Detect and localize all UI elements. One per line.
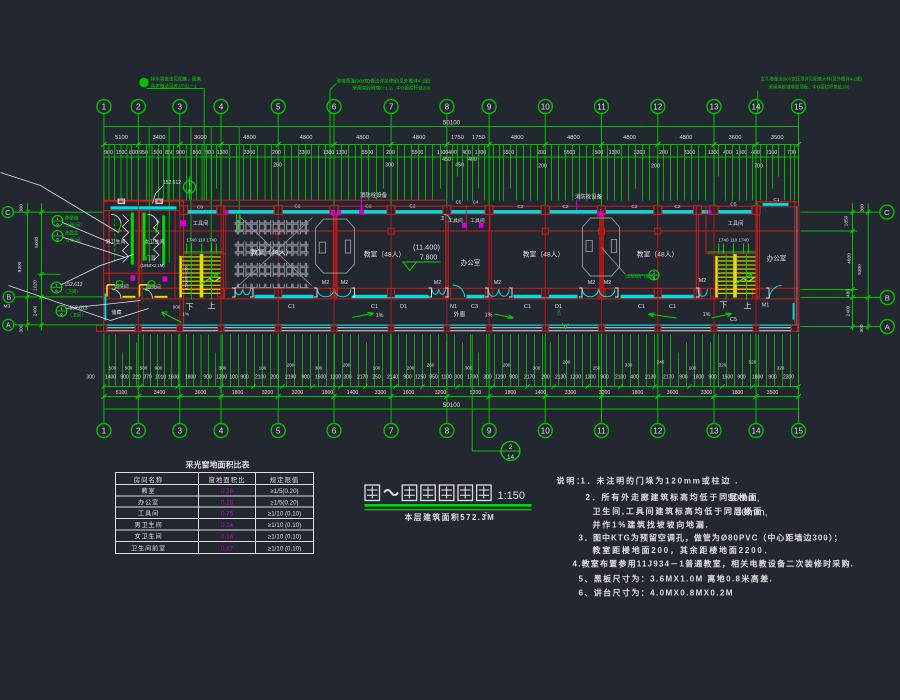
svg-text:1500: 1500 [116, 150, 128, 156]
svg-text:采用夹胶玻璃6+1.2，中O距栏杆处200: 采用夹胶玻璃6+1.2，中O距栏杆处200 [353, 85, 431, 92]
svg-text:260: 260 [273, 163, 282, 169]
svg-text:3: 3 [178, 103, 183, 112]
svg-text:5200: 5200 [470, 390, 482, 396]
svg-text:1300: 1300 [708, 150, 720, 156]
svg-text:240: 240 [657, 360, 665, 365]
svg-text:12: 12 [653, 103, 663, 112]
svg-text:1250: 1250 [415, 375, 426, 381]
svg-text:15: 15 [794, 427, 804, 436]
svg-text:900: 900 [173, 305, 181, 310]
svg-text:3400: 3400 [153, 135, 166, 141]
svg-text:0.26: 0.26 [221, 488, 234, 495]
svg-text:1200: 1200 [495, 375, 506, 381]
svg-text:9300: 9300 [17, 261, 23, 272]
svg-text:300: 300 [86, 375, 95, 381]
svg-text:C: C [5, 210, 10, 217]
svg-text:0.75: 0.75 [221, 511, 234, 518]
svg-text:男卫生间: 男卫生间 [135, 521, 163, 529]
svg-text:152.612: 152.612 [65, 282, 83, 288]
svg-text:≥1/5(0.20): ≥1/5(0.20) [270, 488, 298, 495]
svg-text:3600: 3600 [195, 390, 207, 396]
svg-text:卫生间前室: 卫生间前室 [131, 545, 166, 553]
svg-text:14: 14 [751, 427, 761, 436]
svg-text:3600: 3600 [729, 135, 742, 141]
svg-text:1500: 1500 [437, 150, 449, 156]
svg-text:1600: 1600 [403, 390, 415, 396]
svg-text:1010: 1010 [155, 375, 166, 381]
svg-text:3: 3 [178, 427, 183, 436]
svg-text:7: 7 [389, 103, 394, 112]
svg-text:300: 300 [343, 375, 352, 381]
svg-text:4900: 4900 [847, 253, 853, 264]
svg-text:800: 800 [129, 150, 138, 156]
svg-text:0.16: 0.16 [221, 534, 234, 541]
svg-text:2130: 2130 [645, 375, 656, 381]
svg-text:3300: 3300 [375, 390, 387, 396]
svg-text:卫: 卫 [440, 216, 445, 221]
svg-text:400: 400 [630, 375, 639, 381]
svg-text:消防栓设备: 消防栓设备 [360, 191, 388, 199]
svg-text:C1: C1 [524, 304, 531, 310]
svg-text:2400: 2400 [32, 305, 38, 316]
svg-text:B: B [6, 295, 11, 302]
svg-text:(1850X2.1M): (1850X2.1M) [140, 263, 165, 268]
svg-text:3300: 3300 [684, 150, 696, 156]
svg-text:C: C [884, 208, 890, 217]
svg-text:10: 10 [541, 427, 551, 436]
svg-text:100: 100 [229, 375, 238, 381]
svg-text:4800: 4800 [567, 135, 580, 141]
svg-text:1200: 1200 [330, 375, 341, 381]
svg-text:3．图中KTG为预留空调孔，做管为Ø80PVC（中心距墙边3: 3．图中KTG为预留空调孔，做管为Ø80PVC（中心距墙边300）； [579, 533, 843, 544]
svg-text:14: 14 [507, 454, 515, 461]
svg-text:5500: 5500 [412, 150, 424, 156]
svg-text:采光窗地面积比表: 采光窗地面积比表 [185, 460, 251, 470]
svg-text:5: 5 [276, 103, 281, 112]
svg-text:900: 900 [120, 375, 129, 381]
svg-text:4: 4 [219, 427, 224, 436]
svg-text:3300: 3300 [244, 150, 256, 156]
svg-text:教室（48人）: 教室（48人） [364, 250, 406, 259]
svg-text:4.教室布置参用11J934－1普通教室，相关电教设备二次装: 4.教室布置参用11J934－1普通教室，相关电教设备二次装修时采购. [573, 559, 855, 569]
svg-text:0.87: 0.87 [221, 546, 234, 553]
svg-text:C2: C2 [294, 204, 300, 210]
svg-text:1800: 1800 [732, 390, 744, 396]
svg-text:850: 850 [429, 375, 438, 381]
svg-text:50100: 50100 [443, 402, 461, 409]
svg-text:下: 下 [720, 301, 728, 310]
svg-text:1800: 1800 [322, 390, 334, 396]
svg-text:480: 480 [845, 289, 851, 297]
svg-text:300: 300 [385, 163, 394, 169]
svg-text:1200: 1200 [216, 375, 227, 381]
svg-text:200: 200 [343, 363, 351, 368]
svg-text:900: 900 [600, 375, 609, 381]
svg-text:1400: 1400 [347, 390, 359, 396]
svg-text:(11.400): (11.400) [413, 243, 440, 252]
svg-text:C1: C1 [288, 304, 295, 310]
svg-text:C4: C4 [473, 200, 479, 205]
svg-text:1500: 1500 [736, 150, 748, 156]
svg-text:C3: C3 [471, 304, 478, 310]
svg-text:2140: 2140 [387, 375, 398, 381]
svg-text:1800: 1800 [232, 390, 244, 396]
svg-text:300: 300 [315, 366, 323, 371]
svg-text:1: 1 [102, 103, 107, 112]
svg-text:（2张/间）: （2张/间） [63, 237, 85, 244]
svg-text:9: 9 [487, 427, 492, 436]
svg-text:15: 15 [794, 103, 804, 112]
svg-text:50100: 50100 [443, 120, 461, 127]
svg-text:工具间: 工具间 [138, 510, 159, 518]
svg-text:1600: 1600 [168, 375, 179, 381]
svg-text:3600: 3600 [194, 135, 207, 141]
svg-text:5: 5 [276, 427, 281, 436]
svg-text:M1: M1 [762, 303, 770, 309]
svg-text:教室: 教室 [142, 487, 156, 495]
svg-text:办公室: 办公室 [138, 499, 159, 507]
svg-text:7.800: 7.800 [420, 255, 438, 262]
svg-text:洗面盆: 洗面盆 [65, 230, 79, 237]
svg-text:门洞: 门洞 [145, 255, 155, 262]
svg-text:1300: 1300 [323, 150, 335, 156]
svg-text:1%: 1% [485, 313, 493, 319]
svg-text:700: 700 [754, 164, 763, 170]
svg-text:排水管做法见图集，图集: 排水管做法见图集，图集 [151, 76, 202, 83]
svg-text:100: 100 [373, 366, 381, 371]
svg-text:C1: C1 [371, 304, 378, 310]
svg-text:1300: 1300 [217, 150, 229, 156]
svg-text:6: 6 [332, 427, 337, 436]
svg-text:500: 500 [140, 366, 148, 371]
svg-text:2400: 2400 [845, 305, 851, 316]
svg-text:100: 100 [259, 366, 267, 371]
svg-text:上: 上 [744, 302, 752, 311]
svg-text:上: 上 [208, 302, 216, 311]
svg-text:C5: C5 [118, 199, 124, 205]
svg-text:1400: 1400 [105, 375, 116, 381]
svg-text:900: 900 [708, 375, 717, 381]
svg-text:1740 110 1740: 1740 110 1740 [186, 238, 217, 243]
svg-text:5500: 5500 [503, 150, 515, 156]
svg-text:2100: 2100 [766, 150, 778, 156]
svg-text:消防栓设备: 消防栓设备 [575, 193, 603, 201]
svg-text:M2: M2 [434, 280, 442, 286]
svg-text:1．未注明的门垛为120mm或柱边 .: 1．未注明的门垛为120mm或柱边 . [581, 476, 740, 486]
svg-text:200: 200 [503, 363, 511, 368]
svg-text:1800: 1800 [752, 375, 763, 381]
svg-text:外廊: 外廊 [453, 311, 465, 319]
svg-text:400: 400 [462, 150, 471, 156]
svg-text:C2: C2 [517, 204, 523, 210]
svg-text:3200: 3200 [292, 390, 304, 396]
svg-text:A: A [6, 323, 11, 330]
svg-text:下: 下 [186, 303, 194, 312]
svg-text:300: 300 [219, 366, 227, 371]
svg-text:N1: N1 [450, 304, 457, 310]
svg-text:女卫生间: 女卫生间 [144, 239, 164, 246]
svg-text:2: 2 [485, 512, 488, 518]
svg-text:4800: 4800 [300, 135, 313, 141]
svg-text:B: B [885, 294, 890, 303]
svg-text:女卫生间: 女卫生间 [135, 533, 163, 541]
svg-text:900: 900 [240, 375, 249, 381]
svg-text:2170: 2170 [357, 375, 368, 381]
svg-text:≥1/10 (0.10): ≥1/10 (0.10) [268, 511, 301, 518]
svg-text:M2: M2 [604, 280, 612, 286]
svg-text:C2: C2 [365, 204, 371, 210]
svg-text:1%: 1% [182, 312, 190, 318]
svg-text:4800: 4800 [243, 135, 256, 141]
svg-text:3300: 3300 [299, 150, 311, 156]
svg-text:C1: C1 [669, 304, 676, 310]
svg-text:8: 8 [445, 103, 450, 112]
svg-text:1850: 1850 [843, 215, 849, 226]
svg-text:1740 110 1740: 1740 110 1740 [718, 238, 749, 243]
svg-text:300: 300 [19, 324, 25, 332]
svg-text:≥1/10 (0.10): ≥1/10 (0.10) [268, 546, 301, 553]
svg-text:370: 370 [143, 375, 152, 381]
svg-text:≥1/5(0.20): ≥1/5(0.20) [270, 500, 298, 507]
svg-text:M3: M3 [4, 304, 11, 310]
svg-text:200: 200 [386, 150, 395, 156]
svg-text:教室距楼地面200，其余距楼地面2200．: 教室距楼地面200，其余距楼地面2200． [592, 545, 774, 555]
svg-text:1200: 1200 [570, 375, 581, 381]
svg-text:5000: 5000 [34, 237, 40, 248]
svg-text:14: 14 [751, 103, 761, 112]
svg-text:储藏: 储藏 [111, 309, 121, 316]
svg-text:1750: 1750 [472, 135, 485, 141]
svg-text:1800: 1800 [505, 390, 517, 396]
svg-text:3300: 3300 [701, 390, 713, 396]
svg-text:规定限值: 规定限值 [270, 475, 300, 484]
svg-text:≥1/10 (0.10): ≥1/10 (0.10) [268, 534, 301, 541]
svg-text:30mm,: 30mm, [736, 507, 768, 519]
svg-text:6: 6 [332, 103, 337, 112]
svg-text:450: 450 [442, 157, 451, 163]
svg-text:1:150: 1:150 [498, 490, 526, 502]
svg-text:C5: C5 [730, 202, 736, 208]
svg-text:C5: C5 [156, 199, 162, 205]
svg-text:4800: 4800 [413, 135, 426, 141]
svg-text:2: 2 [509, 444, 513, 451]
svg-text:12: 12 [653, 427, 663, 436]
svg-text:1750: 1750 [451, 135, 464, 141]
svg-text:1500: 1500 [151, 150, 163, 156]
svg-text:C2: C2 [409, 204, 415, 210]
svg-text:250: 250 [593, 366, 601, 371]
svg-text:250: 250 [372, 375, 381, 381]
svg-text:工具间: 工具间 [193, 219, 209, 227]
svg-text:M2: M2 [588, 280, 596, 286]
svg-text:D1: D1 [555, 304, 562, 310]
svg-text:320: 320 [777, 366, 785, 371]
svg-text:6、讲台尺寸为：4.0MX0.8MX0.2M: 6、讲台尺寸为：4.0MX0.8MX0.2M [579, 588, 734, 598]
svg-text:3500: 3500 [767, 390, 779, 396]
svg-text:2300: 2300 [783, 375, 794, 381]
svg-text:2100: 2100 [255, 375, 266, 381]
svg-text:11: 11 [597, 427, 606, 436]
svg-text:4800: 4800 [623, 135, 636, 141]
svg-text:R: R [188, 188, 191, 193]
svg-text:C1: C1 [638, 304, 645, 310]
svg-text:300: 300 [859, 324, 865, 332]
svg-text:900: 900 [509, 375, 518, 381]
svg-text:200: 200 [270, 375, 279, 381]
svg-text:办公室: 办公室 [461, 258, 481, 267]
svg-text:教室（48人）: 教室（48人） [523, 250, 565, 259]
svg-text:11: 11 [597, 103, 606, 112]
svg-text:900: 900 [176, 150, 185, 156]
svg-text:3200: 3200 [262, 390, 274, 396]
svg-text:1600: 1600 [315, 375, 326, 381]
svg-text:4800: 4800 [511, 135, 524, 141]
svg-text:2%: 2% [557, 309, 562, 315]
svg-text:900: 900 [679, 375, 688, 381]
svg-text:300: 300 [19, 204, 25, 212]
svg-text:7: 7 [389, 427, 394, 436]
svg-text:C2: C2 [631, 204, 637, 210]
svg-text:1020: 1020 [32, 280, 38, 291]
svg-text:1400: 1400 [535, 390, 547, 396]
svg-text:C1: C1 [773, 197, 779, 203]
svg-text:100: 100 [689, 366, 697, 371]
svg-text:M2: M2 [699, 278, 707, 284]
svg-text:1: 1 [102, 427, 107, 436]
svg-text:4800: 4800 [356, 135, 369, 141]
svg-text:220: 220 [132, 375, 141, 381]
svg-text:（卫间）: （卫间） [68, 312, 86, 319]
svg-text:2130: 2130 [555, 375, 566, 381]
svg-text:900: 900 [737, 375, 746, 381]
svg-text:办公室: 办公室 [767, 254, 787, 263]
svg-text:教室（48人）: 教室（48人） [637, 250, 679, 259]
svg-text:200: 200 [563, 360, 571, 365]
svg-text:200: 200 [407, 366, 415, 371]
svg-text:C6: C6 [197, 205, 203, 211]
svg-text:0.28: 0.28 [221, 500, 234, 507]
svg-text:8: 8 [445, 427, 450, 436]
svg-text:500: 500 [109, 366, 117, 371]
svg-text:（卫间）: （卫间） [63, 288, 81, 295]
svg-text:D1: D1 [400, 304, 407, 310]
svg-text:200: 200 [272, 150, 281, 156]
svg-text:900: 900 [155, 366, 163, 371]
svg-text:本层建筑面积572.3M: 本层建筑面积572.3M [405, 512, 496, 522]
svg-text:1800: 1800 [185, 375, 196, 381]
svg-text:9: 9 [487, 103, 492, 112]
svg-text:2170: 2170 [524, 375, 535, 381]
svg-text:0.14: 0.14 [221, 522, 234, 529]
svg-text:500: 500 [125, 366, 133, 371]
svg-text:50mm,: 50mm, [728, 492, 760, 504]
svg-text:900: 900 [403, 375, 412, 381]
svg-text:3500: 3500 [771, 135, 784, 141]
svg-text:3600: 3600 [667, 390, 679, 396]
svg-text:300: 300 [533, 366, 541, 371]
svg-text:2100: 2100 [615, 375, 626, 381]
svg-text:2: 2 [136, 103, 141, 112]
svg-text:330: 330 [625, 363, 633, 368]
svg-text:5500: 5500 [362, 150, 374, 156]
svg-text:5、黑板尺寸为：3.6MX1.0M 离地0.8米高差.: 5、黑板尺寸为：3.6MX1.0M 离地0.8米高差. [579, 574, 774, 584]
svg-text:3400: 3400 [154, 390, 166, 396]
svg-text:3300: 3300 [565, 390, 577, 396]
svg-text:200: 200 [287, 363, 295, 368]
svg-text:1500: 1500 [722, 375, 733, 381]
svg-text:200: 200 [538, 164, 547, 170]
svg-text:并作1%建筑找坡坡向地漏.: 并作1%建筑找坡坡向地漏. [593, 520, 710, 530]
svg-text:M2: M2 [494, 280, 502, 286]
svg-text:2190: 2190 [285, 375, 296, 381]
svg-text:工具间: 工具间 [728, 219, 744, 227]
svg-text:300: 300 [859, 204, 865, 212]
svg-text:5100: 5100 [116, 390, 128, 396]
svg-text:1%: 1% [376, 313, 384, 319]
svg-text:1800: 1800 [632, 390, 644, 396]
svg-text:2170: 2170 [663, 375, 674, 381]
svg-text:200: 200 [537, 150, 546, 156]
svg-text:≥1/10 (0.10): ≥1/10 (0.10) [268, 522, 301, 529]
svg-text:13: 13 [709, 103, 719, 112]
svg-text:300: 300 [465, 366, 473, 371]
svg-text:采用夹胶玻璃弧顶板，中O距栏杆垫处200: 采用夹胶玻璃弧顶板，中O距栏杆垫处200 [769, 84, 851, 91]
svg-text:M2: M2 [341, 280, 349, 286]
svg-text:C5: C5 [730, 317, 737, 323]
svg-text:C5: C5 [456, 200, 462, 205]
svg-text:1%: 1% [703, 312, 711, 318]
svg-text:900: 900 [301, 375, 310, 381]
svg-text:900: 900 [203, 375, 212, 381]
svg-text:260: 260 [427, 363, 435, 368]
svg-text:玻璃雨篷(900宽)做法详装修图(见外檐详4-1图): 玻璃雨篷(900宽)做法详装修图(见外檐详4-1图) [337, 78, 431, 85]
svg-text:4: 4 [219, 103, 224, 112]
svg-text:5100: 5100 [115, 135, 128, 141]
svg-text:C2: C2 [562, 204, 568, 210]
svg-text:900: 900 [768, 375, 777, 381]
svg-text:520: 520 [749, 360, 757, 365]
svg-text:1100: 1100 [441, 375, 452, 381]
svg-text:1800: 1800 [693, 375, 704, 381]
svg-text:300: 300 [483, 375, 492, 381]
svg-text:工具间: 工具间 [448, 217, 463, 224]
svg-text:200: 200 [651, 164, 660, 170]
svg-text:10: 10 [541, 103, 551, 112]
svg-text:M2: M2 [322, 280, 330, 286]
svg-text:女儿墙做法(900宽压顶详见配筋大样(见外檐详4-1图): 女儿墙做法(900宽压顶详见配筋大样(见外檐详4-1图) [761, 76, 863, 83]
svg-text:蹲便器: 蹲便器 [65, 215, 79, 222]
svg-text:2: 2 [136, 427, 141, 436]
svg-text:300: 300 [454, 375, 463, 381]
svg-text:教室（48人）: 教室（48人） [251, 248, 293, 257]
svg-text:13: 13 [709, 427, 719, 436]
svg-text:房间名称: 房间名称 [134, 475, 164, 484]
svg-text:1300: 1300 [585, 375, 596, 381]
svg-text:窗地面积比: 窗地面积比 [209, 475, 246, 484]
svg-text:320: 320 [719, 363, 727, 368]
svg-text:200: 200 [541, 375, 550, 381]
svg-text:152.612: 152.612 [163, 180, 181, 186]
svg-text:3200: 3200 [435, 390, 447, 396]
svg-text:15X280=4200: 15X280=4200 [184, 266, 188, 290]
svg-text:9300: 9300 [857, 264, 863, 275]
svg-text:4800: 4800 [679, 135, 692, 141]
svg-text:400: 400 [723, 150, 732, 156]
svg-text:3200: 3200 [599, 390, 611, 396]
svg-text:C2: C2 [674, 204, 680, 210]
